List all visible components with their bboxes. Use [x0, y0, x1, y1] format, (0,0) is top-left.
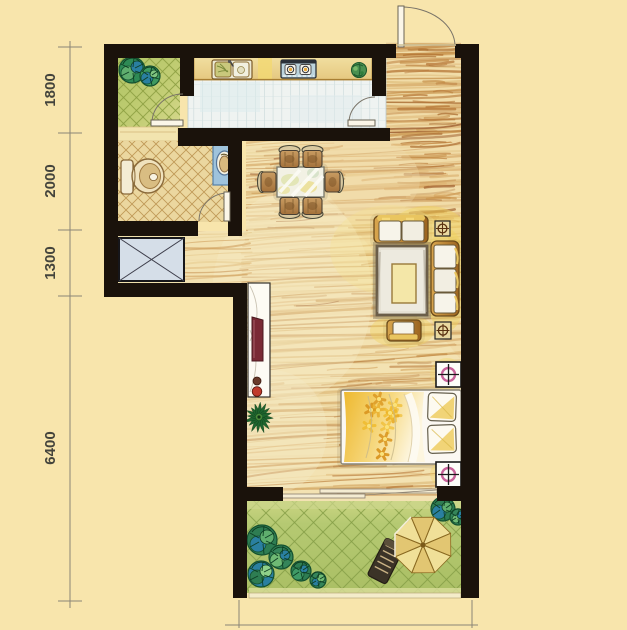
- svg-text:1300: 1300: [42, 246, 59, 279]
- svg-text:2000: 2000: [42, 164, 59, 197]
- svg-text:6400: 6400: [42, 431, 59, 464]
- svg-text:1800: 1800: [42, 73, 59, 106]
